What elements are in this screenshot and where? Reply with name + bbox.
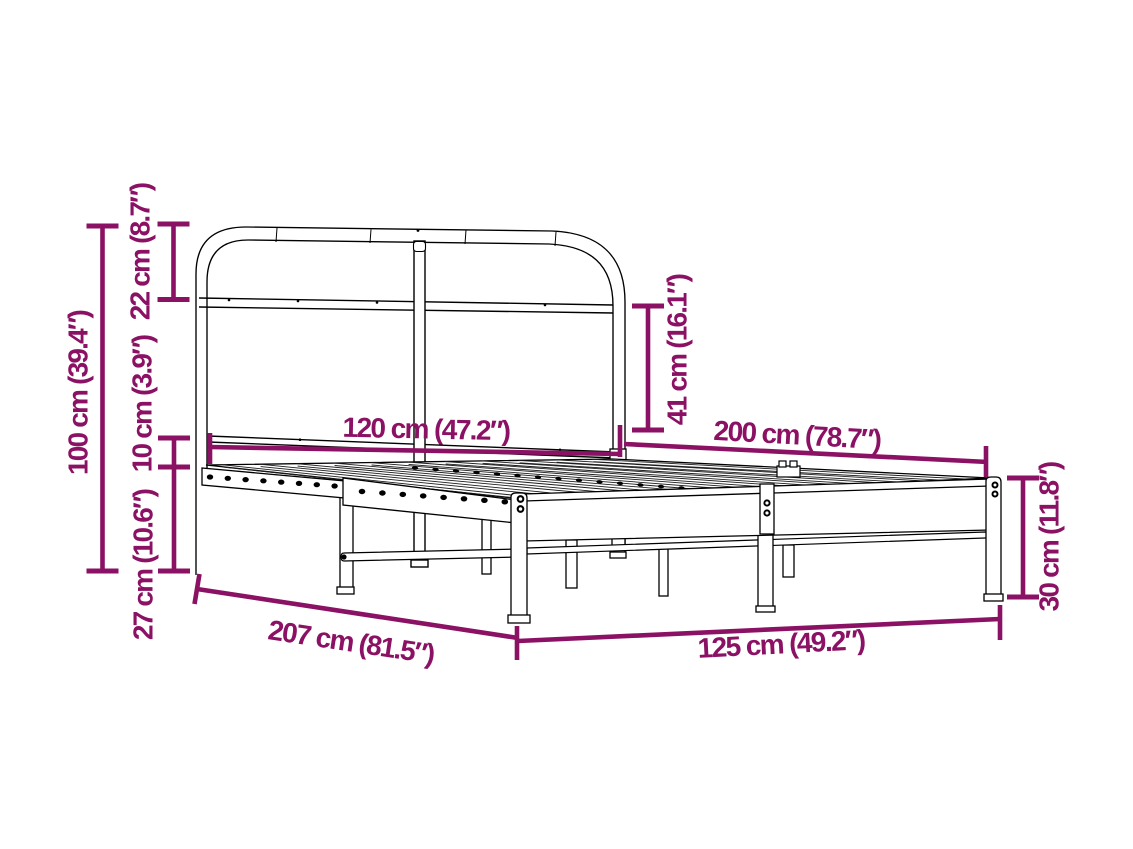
- svg-text:41 cm (16.1″): 41 cm (16.1″): [662, 274, 693, 425]
- svg-text:100 cm (39.4″): 100 cm (39.4″): [63, 310, 94, 475]
- svg-text:30 cm (11.8″): 30 cm (11.8″): [1034, 462, 1065, 611]
- svg-text:27 cm (10.6″): 27 cm (10.6″): [128, 489, 159, 640]
- svg-text:10 cm (3.9″): 10 cm (3.9″): [127, 335, 158, 472]
- svg-text:22 cm (8.7″): 22 cm (8.7″): [125, 183, 156, 320]
- svg-text:120 cm (47.2″): 120 cm (47.2″): [342, 412, 510, 446]
